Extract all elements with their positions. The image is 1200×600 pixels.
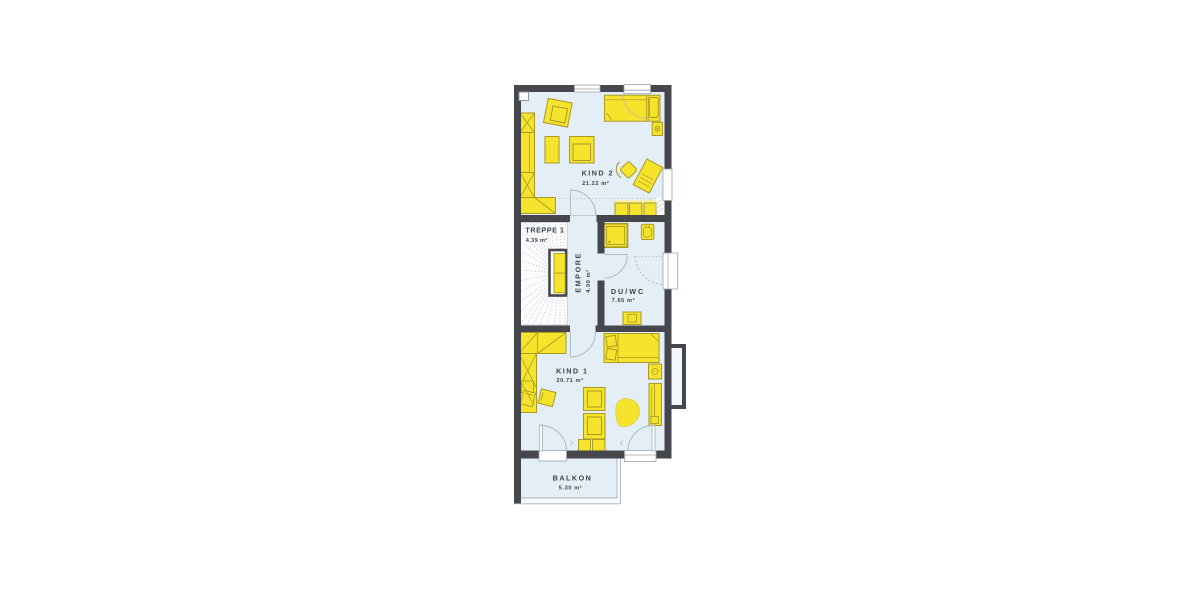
- svg-text:DU/WC: DU/WC: [611, 287, 645, 296]
- svg-text:BALKON: BALKON: [553, 474, 593, 483]
- svg-text:4.00 m²: 4.00 m²: [585, 269, 592, 292]
- svg-text:20.71 m²: 20.71 m²: [556, 377, 583, 384]
- svg-text:KIND 2: KIND 2: [582, 168, 614, 177]
- svg-text:TREPPE 1: TREPPE 1: [525, 226, 564, 235]
- svg-text:KIND 1: KIND 1: [556, 367, 588, 376]
- svg-text:5.30 m²: 5.30 m²: [559, 484, 582, 491]
- svg-text:21.22 m²: 21.22 m²: [582, 180, 609, 187]
- svg-text:4.39 m²: 4.39 m²: [526, 237, 548, 244]
- svg-text:7.65 m²: 7.65 m²: [612, 297, 635, 304]
- svg-text:EMPORE: EMPORE: [574, 252, 583, 293]
